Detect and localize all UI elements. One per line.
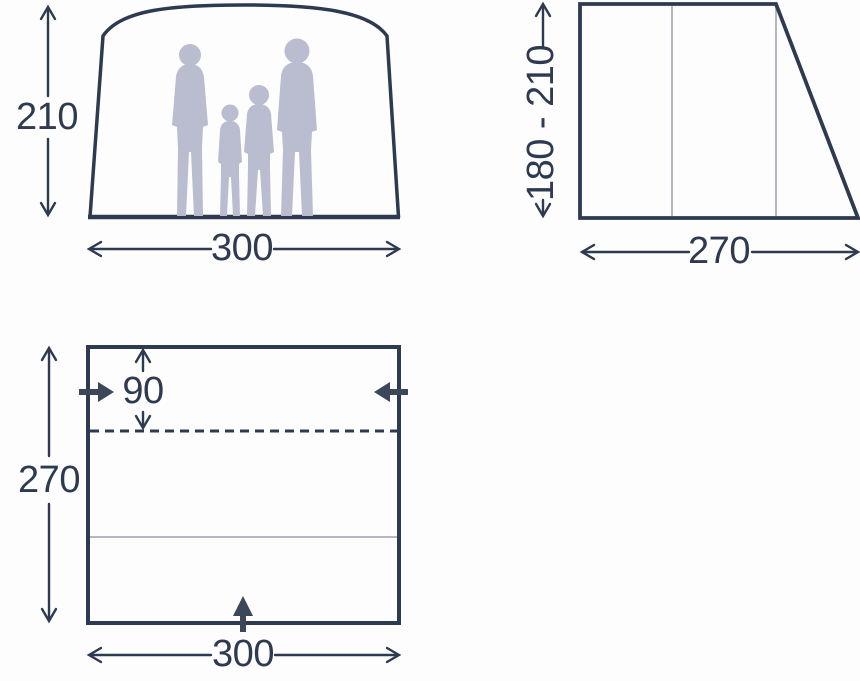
plan-width-label: 300 (212, 635, 274, 673)
front-width-label: 300 (211, 229, 273, 267)
entrance-arrow-right-icon (374, 382, 408, 402)
woman-body (172, 64, 208, 216)
tent-dimensions-diagram: 210 300 180 - 210 270 90 270 300 (0, 0, 860, 681)
side-elevation-view (430, 0, 860, 280)
boy-body (244, 104, 274, 216)
woman-head (179, 44, 201, 66)
child-body (218, 121, 242, 216)
entrance-arrow-front-icon (233, 596, 253, 632)
man-body (277, 62, 317, 216)
door-offset-label: 90 (122, 372, 163, 410)
side-profile-outline (580, 4, 858, 218)
family-of-four-silhouette-icon (172, 39, 317, 217)
entrance-arrow-left-icon (79, 382, 114, 402)
front-height-label: 210 (16, 98, 78, 136)
tent-outline (90, 5, 399, 217)
boy-head (249, 85, 269, 105)
child-head (222, 105, 239, 122)
side-depth-label: 270 (688, 232, 750, 270)
side-height-range-label: 180 - 210 (522, 45, 560, 201)
man-head (285, 39, 310, 64)
plan-depth-label: 270 (18, 461, 80, 499)
entrance-arrows (79, 382, 408, 632)
floor-plan-view (0, 330, 430, 681)
